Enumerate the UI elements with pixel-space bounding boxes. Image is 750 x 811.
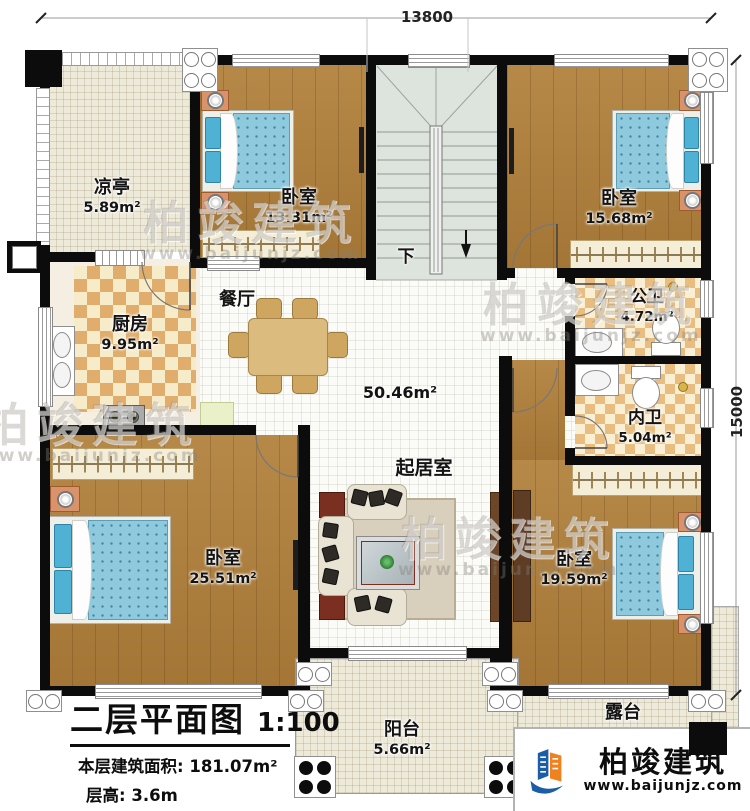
room-area: 5.04m²	[618, 430, 671, 446]
room-area: 5.89m²	[83, 200, 140, 216]
room-area: 50.46m²	[363, 383, 437, 402]
room-area: 19.59m²	[540, 572, 607, 588]
floor-height-line: 层高: 3.6m	[86, 782, 370, 806]
room-name: 卧室	[281, 187, 317, 208]
room-area: 9.95m²	[101, 337, 158, 353]
room-name: 凉亭	[94, 177, 130, 198]
title-block: 二层平面图1:100 本层建筑面积: 181.07m² 层高: 3.6m	[70, 693, 370, 806]
page-title: 二层平面图	[70, 700, 245, 739]
floor-plan: 13800 15000 凉亭 5.89m² 卧室 13.31m² 卧室 15.6…	[0, 0, 750, 811]
company-logo-icon	[524, 743, 576, 799]
room-area: 15.68m²	[585, 211, 652, 227]
room-label-kitchen: 厨房 9.95m²	[101, 315, 158, 353]
title-underline	[70, 744, 290, 747]
floor-area-line: 本层建筑面积: 181.07m²	[78, 753, 370, 777]
dimension-top: 13800	[401, 8, 453, 26]
room-label-dining: 餐厅	[219, 290, 255, 310]
room-label-bedroom-bl: 卧室 25.51m²	[189, 549, 256, 587]
room-label-living: 起居室	[395, 458, 452, 479]
room-label-bath-private: 内卫 5.04m²	[618, 409, 671, 446]
room-label-pavilion: 凉亭 5.89m²	[83, 178, 140, 216]
room-area: 4.72m²	[620, 309, 673, 325]
room-name: 阳台	[384, 719, 420, 740]
room-label-bath-public: 公卫 4.72m²	[620, 288, 673, 325]
door-arcs	[0, 0, 750, 811]
room-name: 餐厅	[219, 289, 255, 310]
room-name: 卧室	[556, 549, 592, 570]
room-label-bedroom-tr: 卧室 15.68m²	[585, 189, 652, 227]
room-label-balcony: 阳台 5.66m²	[373, 720, 430, 758]
room-name: 厨房	[112, 314, 148, 335]
room-name: 卧室	[205, 548, 241, 569]
company-website: www.baijunjz.com	[584, 778, 743, 794]
room-name: 露台	[605, 702, 641, 723]
room-area: 25.51m²	[189, 571, 256, 587]
terrace-column	[689, 722, 727, 755]
room-area: 5.66m²	[373, 742, 430, 758]
room-name: 公卫	[630, 287, 664, 307]
room-label-terrace: 露台	[605, 703, 641, 723]
room-name: 内卫	[628, 408, 662, 428]
stairs-down-label: 下	[398, 248, 415, 267]
room-name: 卧室	[601, 188, 637, 209]
dimension-right: 15000	[728, 386, 746, 438]
plan-scale: 1:100	[257, 708, 340, 738]
room-label-bedroom-tl: 卧室 13.31m²	[265, 188, 332, 226]
room-area: 13.31m²	[265, 210, 332, 226]
living-area-label: 50.46m²	[363, 384, 437, 402]
room-name: 起居室	[395, 457, 452, 479]
room-label-bedroom-br: 卧室 19.59m²	[540, 550, 607, 588]
